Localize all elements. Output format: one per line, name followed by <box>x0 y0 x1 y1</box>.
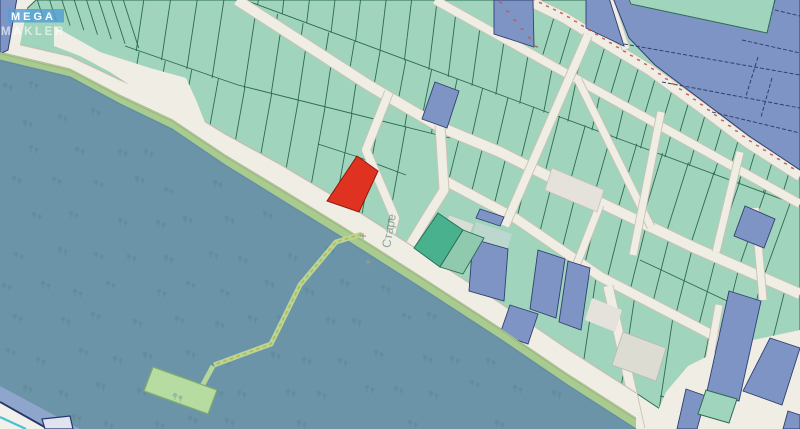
svg-text:MEGA: MEGA <box>11 11 56 23</box>
svg-text:MAKLER: MAKLER <box>1 26 66 38</box>
